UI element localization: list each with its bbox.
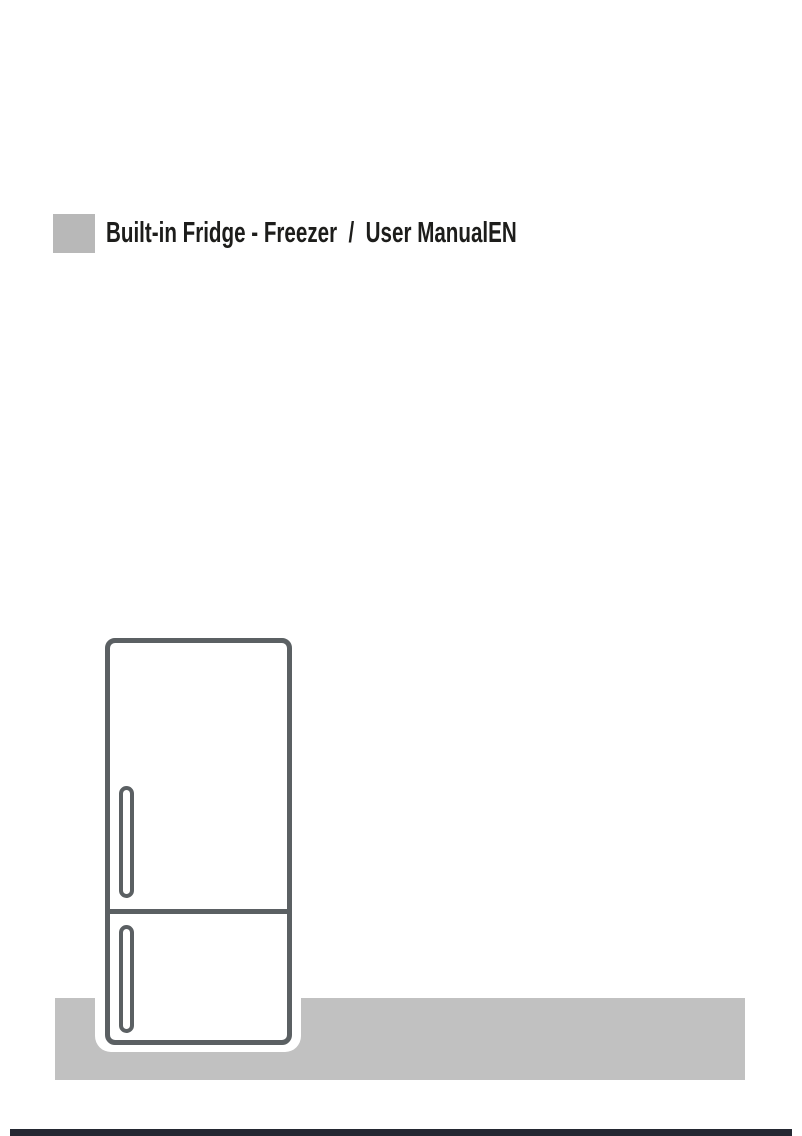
manual-cover-page: Built-in Fridge - Freezer / User ManualE… <box>0 0 802 1136</box>
fridge-freezer-outline-icon <box>105 638 292 1045</box>
fridge-door-divider <box>110 909 287 914</box>
freezer-door-handle-bottom <box>119 925 134 1033</box>
page-title-text: Built-in Fridge - Freezer / User ManualE… <box>106 218 517 248</box>
footer-rule-bar <box>10 1129 792 1136</box>
page-title: Built-in Fridge - Freezer / User ManualE… <box>106 218 685 248</box>
fridge-door-handle-top <box>119 786 134 898</box>
section-marker-square <box>53 214 95 253</box>
